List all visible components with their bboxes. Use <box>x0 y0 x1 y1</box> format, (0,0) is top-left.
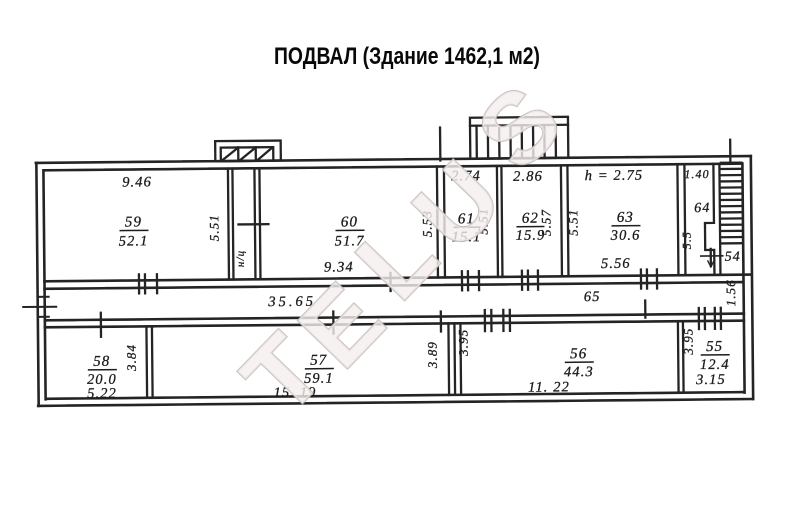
svg-text:h = 2.75: h = 2.75 <box>585 168 644 185</box>
svg-text:3.89: 3.89 <box>425 341 440 369</box>
svg-text:65: 65 <box>584 289 601 305</box>
svg-text:55: 55 <box>706 339 723 355</box>
svg-text:3.15: 3.15 <box>695 372 726 388</box>
svg-text:3.84: 3.84 <box>124 344 139 372</box>
svg-text:5.56: 5.56 <box>601 256 631 272</box>
svg-text:5.51: 5.51 <box>565 209 580 236</box>
svg-text:5.5: 5.5 <box>680 231 694 249</box>
svg-text:н/ц: н/ц <box>235 250 247 267</box>
svg-text:5.57: 5.57 <box>538 209 553 236</box>
svg-text:54: 54 <box>725 250 741 265</box>
svg-text:3.95: 3.95 <box>680 327 695 355</box>
svg-text:64: 64 <box>694 201 710 216</box>
svg-text:11. 22: 11. 22 <box>528 379 570 395</box>
svg-text:30.6: 30.6 <box>610 228 641 244</box>
svg-text:1.56: 1.56 <box>723 279 738 306</box>
svg-text:3.95: 3.95 <box>455 329 470 357</box>
svg-text:52.1: 52.1 <box>119 233 149 249</box>
svg-text:63: 63 <box>617 210 634 226</box>
svg-text:12.4: 12.4 <box>700 357 730 373</box>
svg-text:44.3: 44.3 <box>564 364 594 380</box>
svg-text:56: 56 <box>570 346 587 362</box>
svg-text:59: 59 <box>125 214 142 230</box>
svg-text:5.22: 5.22 <box>87 386 117 402</box>
svg-text:9.46: 9.46 <box>122 174 152 190</box>
svg-text:1.40: 1.40 <box>684 167 710 181</box>
svg-text:58: 58 <box>93 354 110 370</box>
svg-text:5.51: 5.51 <box>206 214 221 241</box>
